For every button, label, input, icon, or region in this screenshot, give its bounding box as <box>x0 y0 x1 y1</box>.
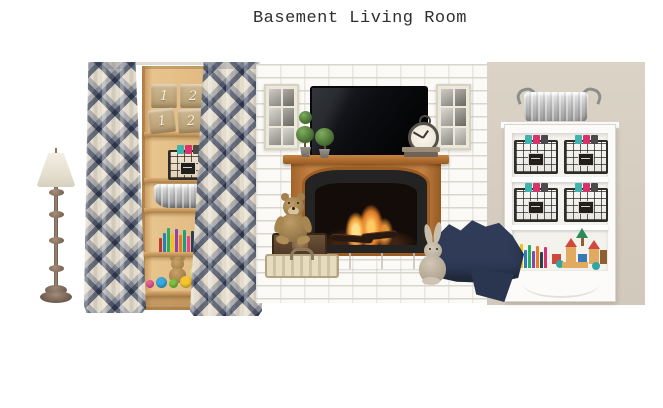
fire-chamber <box>315 183 417 245</box>
photo <box>441 128 453 145</box>
bunny-eye <box>436 248 438 250</box>
basket-content <box>533 135 540 144</box>
photo <box>455 128 467 145</box>
basket-content <box>525 135 532 144</box>
photo <box>283 89 295 106</box>
floor-lamp <box>37 153 81 305</box>
block-roof <box>565 238 577 247</box>
mood-board: Basement Living Room 1 2 1 2 <box>0 0 663 408</box>
basket-content <box>193 145 200 154</box>
photo-frame-left <box>264 84 299 150</box>
bin-number: 1 <box>157 113 167 129</box>
basket-content <box>525 183 532 192</box>
photo <box>441 108 453 125</box>
book-spine <box>159 238 162 252</box>
book-spine <box>540 252 543 268</box>
basket-contents <box>518 183 554 192</box>
block-tree <box>576 228 588 238</box>
book-spine <box>536 246 539 268</box>
wire-basket <box>564 188 608 222</box>
plush-toy <box>156 277 167 288</box>
page-title: Basement Living Room <box>253 9 467 28</box>
wire-basket <box>564 140 608 174</box>
block-tree-trunk <box>581 238 584 246</box>
topiary-ball <box>315 128 334 146</box>
base-arch <box>523 284 599 298</box>
photo-frame-right <box>436 84 471 150</box>
lamp-turning <box>49 265 64 272</box>
block-roof <box>588 240 600 249</box>
block <box>592 262 600 270</box>
vintage-suitcase-striped <box>265 254 339 278</box>
chalkboard-label <box>528 201 544 214</box>
storage-bin: 1 <box>148 108 177 135</box>
basket-content <box>541 183 548 192</box>
basket-contents <box>568 135 604 144</box>
wire-basket <box>514 188 558 222</box>
chalkboard-label <box>578 201 594 214</box>
photo <box>455 108 467 125</box>
block <box>600 250 607 264</box>
photo <box>455 89 467 106</box>
curtain-panel-left <box>84 62 146 313</box>
book-spine <box>532 251 535 268</box>
photo <box>269 108 281 125</box>
lamp-turning <box>49 189 64 196</box>
shelf-board <box>512 177 608 182</box>
book-spine <box>163 233 166 252</box>
book-spine <box>167 228 170 252</box>
basket-content <box>583 135 590 144</box>
basket-content <box>185 145 192 154</box>
basket-contents <box>568 183 604 192</box>
chalkboard-label <box>180 162 196 175</box>
photo <box>283 128 295 145</box>
lamp-base <box>40 291 72 303</box>
bin-number: 2 <box>189 89 197 104</box>
basket-content <box>541 135 548 144</box>
book-spine <box>171 234 174 252</box>
topiary-ball <box>299 111 312 124</box>
suitcase-handle <box>290 248 314 260</box>
basket-content <box>575 183 582 192</box>
teddy-eye <box>297 202 299 204</box>
photo <box>269 89 281 106</box>
book-spine <box>183 230 186 252</box>
bunny-feet <box>422 277 440 285</box>
basket-content <box>575 135 582 144</box>
book-spine <box>524 250 527 268</box>
basket-contents <box>518 135 554 144</box>
wire-basket <box>514 140 558 174</box>
stacked-book <box>404 152 438 157</box>
book-spine <box>187 236 190 252</box>
basket-content <box>533 183 540 192</box>
chalkboard-label <box>578 153 594 166</box>
basket-content <box>177 145 184 154</box>
bin-number: 1 <box>160 89 168 104</box>
plush-toy <box>146 280 154 288</box>
topiary-ball <box>296 126 314 143</box>
block <box>562 262 588 268</box>
storage-bin: 1 <box>151 84 177 108</box>
basket-content <box>591 135 598 144</box>
bin-number: 2 <box>186 113 195 128</box>
lamp-turning <box>49 211 64 218</box>
plush-toy <box>180 276 192 288</box>
book-spine <box>544 247 547 268</box>
lamp-turning <box>49 237 64 244</box>
teddy-nose <box>292 207 295 210</box>
book-spine <box>175 229 178 252</box>
teddy-eye <box>288 202 290 204</box>
photo <box>283 108 295 125</box>
photo <box>269 128 281 145</box>
plush-toy <box>169 279 178 288</box>
basket-content <box>583 183 590 192</box>
shelf-board <box>512 225 608 230</box>
chalkboard-label <box>528 153 544 166</box>
photo <box>441 89 453 106</box>
bunny-eye <box>429 248 431 250</box>
book-spine <box>528 245 531 268</box>
basket-content <box>591 183 598 192</box>
lamp-shade <box>37 153 75 187</box>
toy-block-castle <box>552 234 610 270</box>
book-spine <box>179 235 182 252</box>
